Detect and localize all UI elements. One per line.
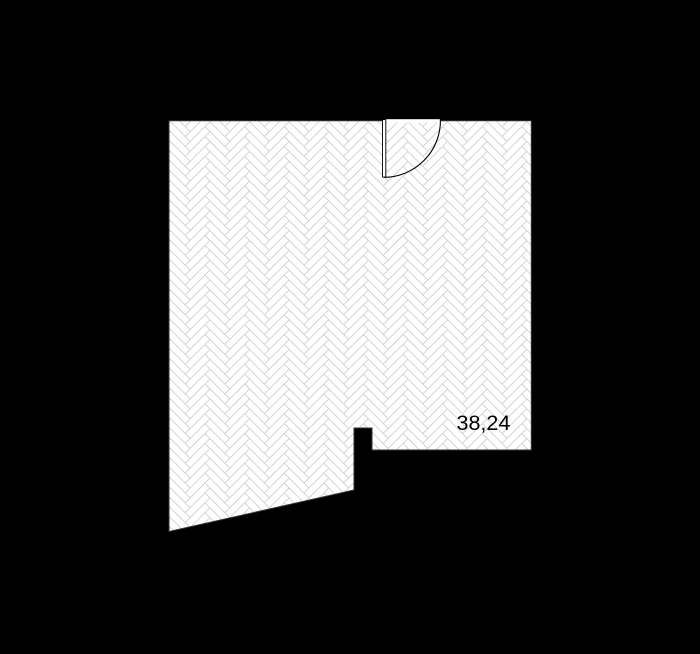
svg-text:38,24: 38,24 xyxy=(457,411,511,435)
